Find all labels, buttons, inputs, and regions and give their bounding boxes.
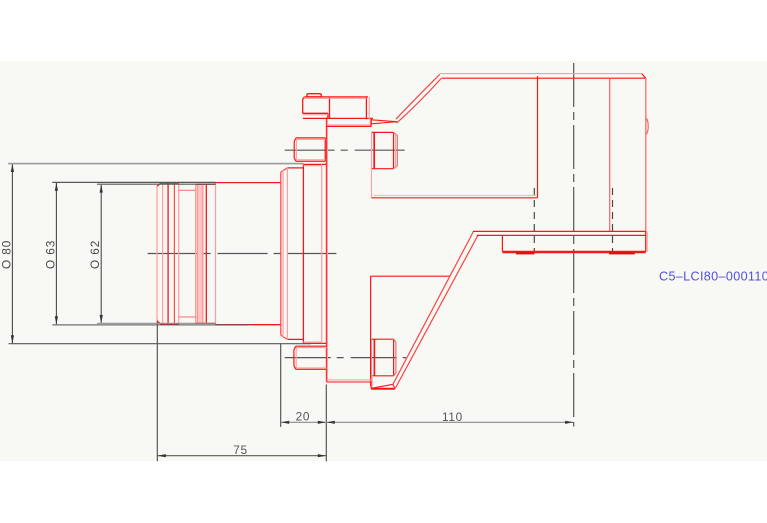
svg-text:O 80: O 80 (0, 240, 13, 269)
svg-text:110: 110 (442, 410, 463, 424)
svg-text:O 63: O 63 (43, 240, 57, 269)
svg-text:O 62: O 62 (88, 240, 102, 269)
svg-text:C5–LCI80–000110: C5–LCI80–000110 (659, 269, 767, 283)
svg-text:75: 75 (233, 443, 248, 457)
svg-text:20: 20 (296, 410, 311, 424)
